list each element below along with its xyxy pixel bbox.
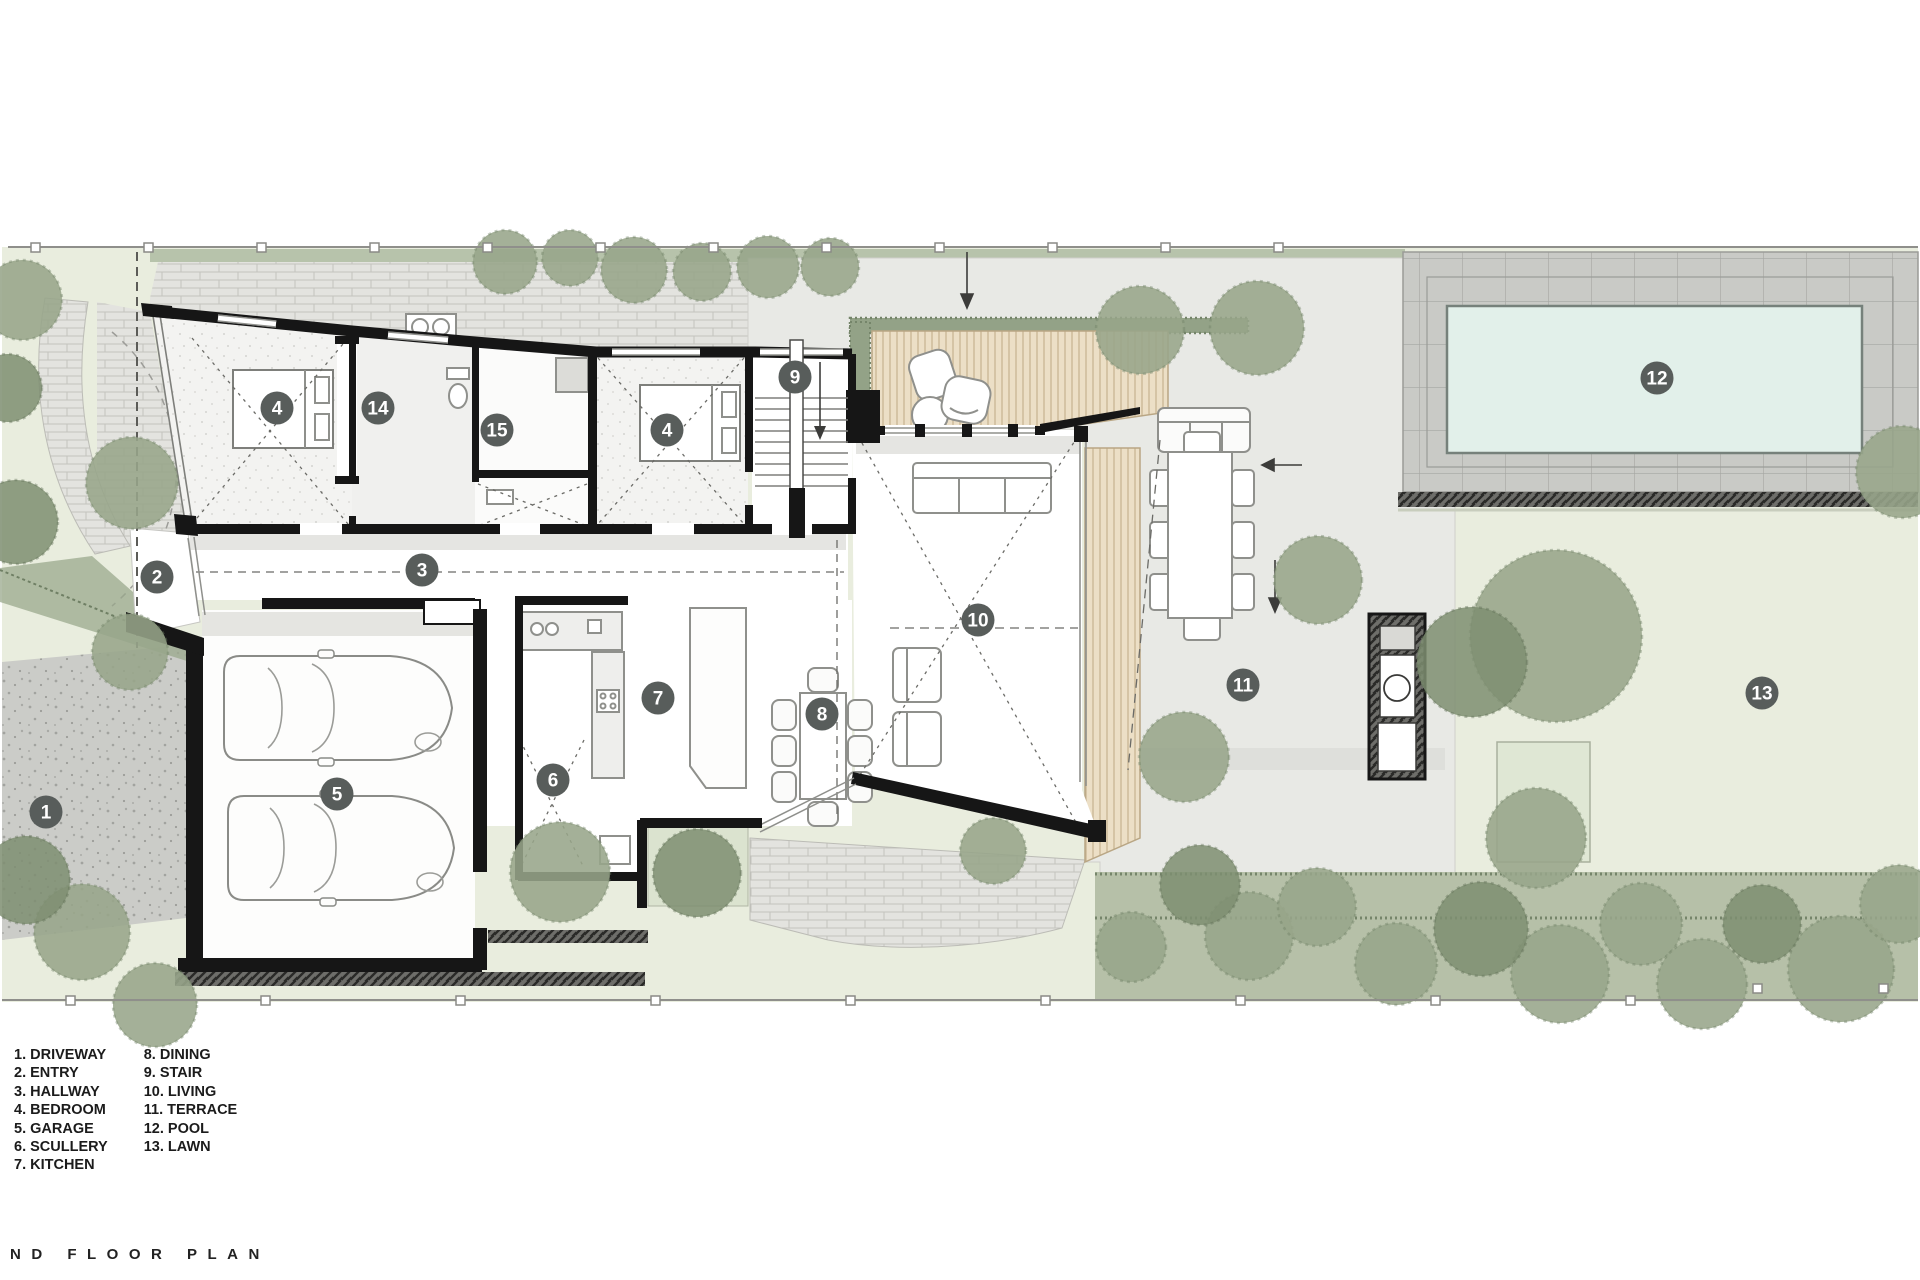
room-marker: 8 [806,698,839,731]
svg-text:10: 10 [967,611,988,632]
room-marker: 7 [642,682,675,715]
room-marker: 2 [141,561,174,594]
room-marker: 4 [651,414,684,447]
room-marker: 13 [1746,677,1779,710]
page-title: ND FLOOR PLAN [10,1246,270,1263]
legend-item: 11. TERRACE [144,1101,237,1119]
svg-text:15: 15 [486,421,508,442]
svg-text:13: 13 [1751,684,1772,705]
floor-plan-page: 1234456789101112131415 1. DRIVEWAY2. ENT… [0,0,1920,1280]
legend-column-1: 1. DRIVEWAY2. ENTRY3. HALLWAY4. BEDROOM5… [14,1046,108,1175]
legend: 1. DRIVEWAY2. ENTRY3. HALLWAY4. BEDROOM5… [14,1046,237,1175]
legend-item: 12. POOL [144,1120,237,1138]
room-marker: 15 [481,414,514,447]
svg-text:3: 3 [417,561,428,582]
svg-text:5: 5 [332,785,343,806]
svg-text:1: 1 [41,803,52,824]
room-marker: 5 [321,778,354,811]
kitchen-island [690,608,746,788]
svg-text:8: 8 [817,705,828,726]
room-marker: 4 [261,392,294,425]
svg-text:2: 2 [152,568,163,589]
svg-text:4: 4 [272,399,283,420]
svg-text:12: 12 [1646,369,1667,390]
room-marker: 1 [30,796,63,829]
retaining-wall [1398,492,1918,507]
legend-item: 5. GARAGE [14,1120,108,1138]
timber-deck-east [1085,448,1140,862]
room-marker: 11 [1227,669,1260,702]
legend-item: 3. HALLWAY [14,1083,108,1101]
room-marker: 3 [406,554,439,587]
room-marker: 10 [962,604,995,637]
room-marker: 12 [1641,362,1674,395]
legend-item: 6. SCULLERY [14,1138,108,1156]
braai-unit [1369,614,1425,779]
legend-item: 1. DRIVEWAY [14,1046,108,1064]
legend-item: 7. KITCHEN [14,1156,108,1174]
svg-text:9: 9 [790,368,801,389]
legend-column-2: 8. DINING9. STAIR10. LIVING11. TERRACE12… [144,1046,237,1175]
room-marker: 14 [362,392,395,425]
legend-item: 8. DINING [144,1046,237,1064]
legend-item: 10. LIVING [144,1083,237,1101]
room-marker: 9 [779,361,812,394]
legend-item: 13. LAWN [144,1138,237,1156]
car-1 [224,650,452,766]
fireplace-wall [846,390,880,443]
legend-item: 2. ENTRY [14,1064,108,1082]
svg-text:14: 14 [367,399,389,420]
svg-text:4: 4 [662,421,673,442]
svg-text:6: 6 [548,771,559,792]
site-plan-drawing: 1234456789101112131415 [0,0,1920,1280]
legend-item: 9. STAIR [144,1064,237,1082]
room-marker: 6 [537,764,570,797]
living-sofa [913,463,1051,513]
svg-text:7: 7 [653,689,664,710]
svg-text:11: 11 [1233,676,1254,697]
legend-item: 4. BEDROOM [14,1101,108,1119]
